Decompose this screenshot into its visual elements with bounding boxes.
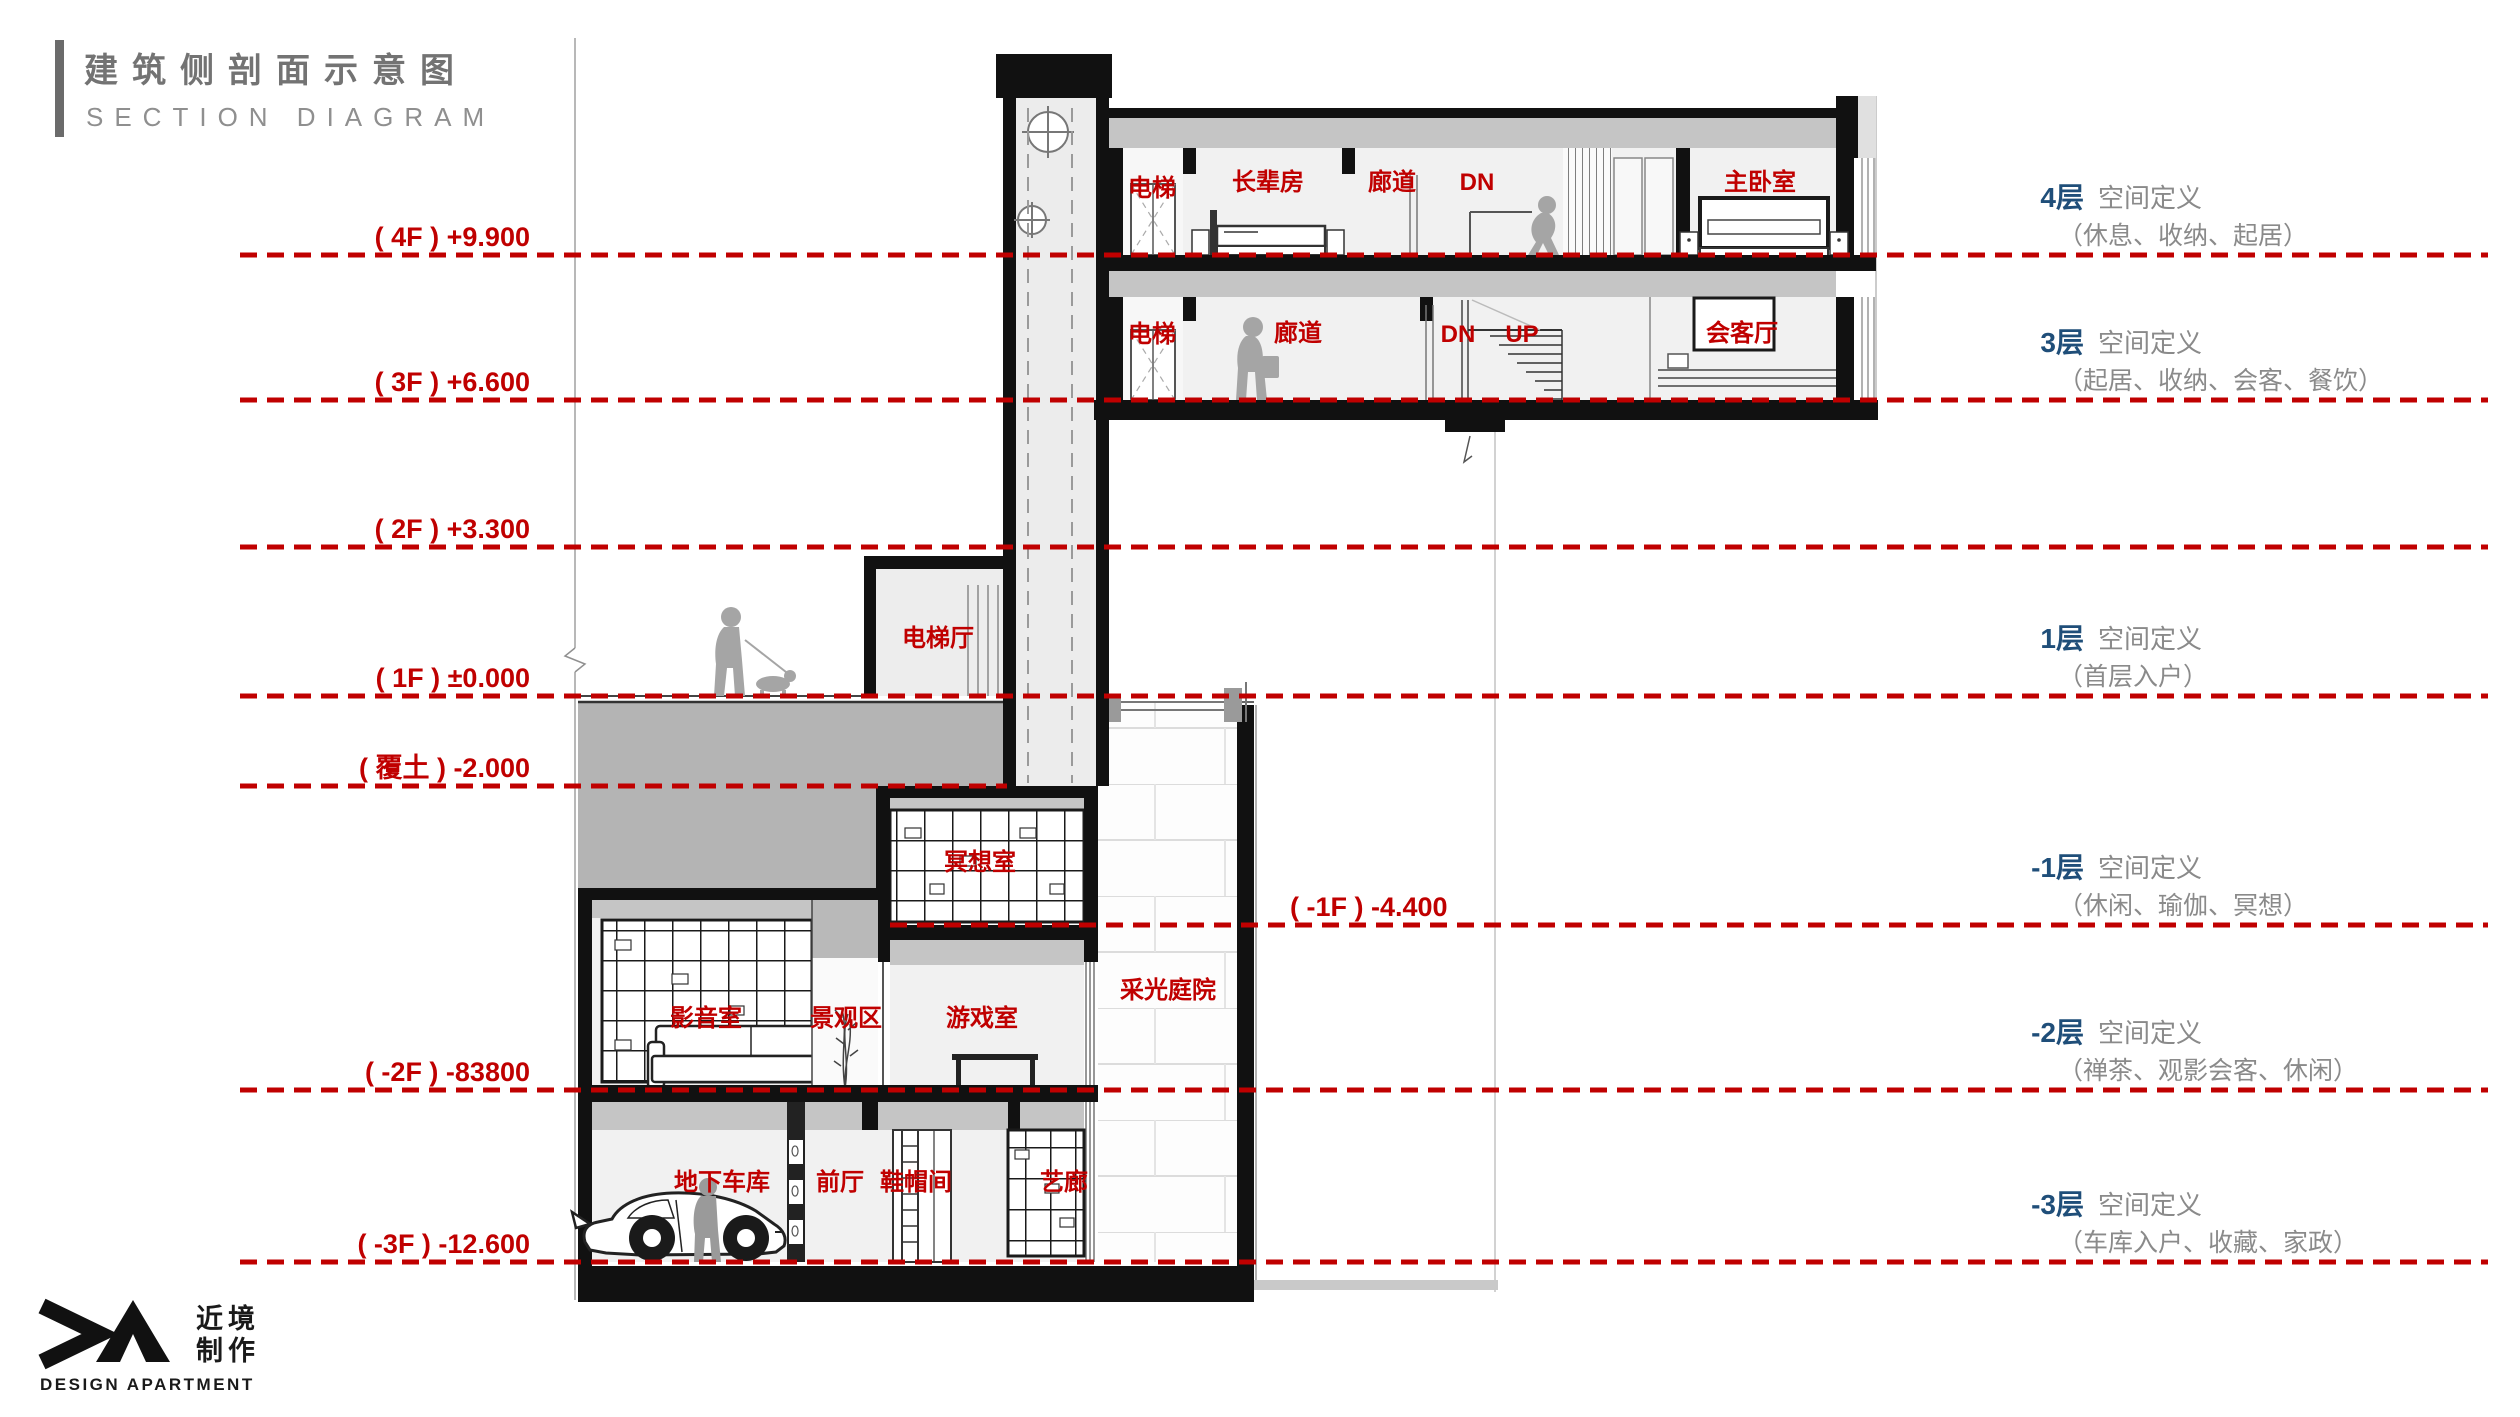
foundation-slab xyxy=(578,1266,1498,1302)
level-label-2f: ( 2F ) +3.300 xyxy=(375,514,530,544)
floor-def-b2-title: 空间定义 xyxy=(2098,1018,2202,1048)
person-figure-with-dog xyxy=(714,607,796,698)
room-label-f4-corridor: 廊道 xyxy=(1368,168,1416,196)
room-label-f3-elevator: 电梯 xyxy=(1128,320,1176,348)
floor-def-3f-num: 3层 xyxy=(2040,327,2084,358)
floor-def-1f-detail: （首层入户） xyxy=(2058,663,2208,691)
floor-def-4f-title: 空间定义 xyxy=(2098,183,2202,213)
f4-panel xyxy=(1614,158,1642,255)
level-label-b3: ( -3F ) -12.600 xyxy=(357,1229,530,1259)
floor-def-1f: 1层 空间定义 （首层入户） xyxy=(2040,623,2208,691)
room-label-b3-garage: 地下车库 xyxy=(674,1168,770,1196)
f4-wardrobe xyxy=(1563,148,1612,255)
room-label-f4-elder: 长辈房 xyxy=(1232,168,1304,196)
logo-zh-top: 近境 xyxy=(196,1304,260,1334)
room-label-b2-game: 游戏室 xyxy=(946,1004,1018,1032)
b3-display-pillar xyxy=(787,1102,805,1262)
f4-right-glazing xyxy=(1862,158,1874,255)
room-label-b3-foyer: 前厅 xyxy=(816,1168,864,1196)
logo-chevron-icon xyxy=(42,1306,100,1362)
room-label-f3-up: UP xyxy=(1505,321,1538,348)
section-diagram-page: ( 4F ) +9.900 ( 3F ) +6.600 ( 2F ) +3.30… xyxy=(0,0,2520,1417)
floor-def-b3: -3层 空间定义 （车库入户、收藏、家政） xyxy=(2031,1189,2358,1257)
floor-def-b1-detail: （休闲、瑜伽、冥想） xyxy=(2058,892,2308,920)
logo-en: DESIGN APARTMENT xyxy=(40,1375,255,1394)
level-label-1f: ( 1F ) ±0.000 xyxy=(376,663,530,693)
room-label-f4-dn: DN xyxy=(1460,169,1495,196)
f3-floor-slab xyxy=(1094,400,1878,420)
title-bar xyxy=(55,40,64,137)
floor-def-3f-detail: （起居、收纳、会客、餐饮） xyxy=(2058,367,2383,395)
floor-3f-section xyxy=(1094,271,1878,462)
room-label-f4-master: 主卧室 xyxy=(1724,168,1796,196)
floor-def-b1-title: 空间定义 xyxy=(2098,853,2202,883)
f4-master-bed xyxy=(1680,198,1848,256)
room-label-f1-hall: 电梯厅 xyxy=(902,624,974,652)
f3-elevator-door xyxy=(1123,297,1183,400)
room-label-b2-landscape: 景观区 xyxy=(810,1005,882,1032)
room-label-b3-gallery: 艺廊 xyxy=(1040,1168,1088,1196)
floor-def-4f: 4层 空间定义 （休息、收纳、起居） xyxy=(2040,182,2308,250)
floor-definitions: 4层 空间定义 （休息、收纳、起居） 3层 空间定义 （起居、收纳、会客、餐饮）… xyxy=(2031,182,2383,1257)
floor-def-3f: 3层 空间定义 （起居、收纳、会客、餐饮） xyxy=(2040,327,2383,395)
level-label-b1: ( -1F ) -4.400 xyxy=(1290,892,1448,922)
room-label-b1-meditation: 冥想室 xyxy=(944,848,1016,876)
room-label-court: 采光庭院 xyxy=(1120,976,1216,1004)
room-label-b3-shoe: 鞋帽间 xyxy=(880,1169,952,1196)
room-label-f4-elevator: 电梯 xyxy=(1128,174,1176,202)
floor-def-4f-num: 4层 xyxy=(2040,182,2084,213)
level-label-4f: ( 4F ) +9.900 xyxy=(375,222,530,252)
tower-cap xyxy=(996,54,1112,98)
b2-landscape-zone xyxy=(812,900,883,1090)
floor-def-b3-detail: （车库入户、收藏、家政） xyxy=(2058,1229,2358,1257)
section-pointer xyxy=(1464,436,1472,462)
floor-def-1f-num: 1层 xyxy=(2040,623,2084,654)
floor-def-b1: -1层 空间定义 （休闲、瑜伽、冥想） xyxy=(2031,852,2308,920)
floor-def-b2-num: -2层 xyxy=(2031,1017,2084,1048)
b3-shoe-cabinet xyxy=(893,1130,951,1262)
page-title: 建筑侧剖面示意图 xyxy=(84,52,468,90)
page-subtitle: SECTION DIAGRAM xyxy=(86,102,495,132)
room-label-f3-corridor: 廊道 xyxy=(1274,319,1322,347)
logo-zh-bottom: 制作 xyxy=(196,1336,260,1366)
floor-def-3f-title: 空间定义 xyxy=(2098,328,2202,358)
room-label-b2-cinema: 影音室 xyxy=(670,1004,742,1032)
logo: 近境 制作 DESIGN APARTMENT xyxy=(40,1300,260,1394)
section-diagram-canvas: ( 4F ) +9.900 ( 3F ) +6.600 ( 2F ) +3.30… xyxy=(0,0,2520,1417)
f4-panel xyxy=(1645,158,1673,255)
f3-right-glazing xyxy=(1862,297,1874,400)
room-label-f3-reception: 会客厅 xyxy=(1706,319,1778,347)
courtyard-right-wall xyxy=(1237,705,1254,1285)
floor-def-1f-title: 空间定义 xyxy=(2098,624,2202,654)
floor-def-b2-detail: （禅茶、观影会客、休闲） xyxy=(2058,1057,2358,1085)
grid-break-mark xyxy=(565,648,585,672)
title-block: 建筑侧剖面示意图 SECTION DIAGRAM xyxy=(55,40,495,137)
level-label-b2: ( -2F ) -83800 xyxy=(365,1057,530,1087)
level-label-3f: ( 3F ) +6.600 xyxy=(375,367,530,397)
floor-def-b1-num: -1层 xyxy=(2031,852,2084,883)
floor-def-b3-num: -3层 xyxy=(2031,1189,2084,1220)
room-label-f3-dn: DN xyxy=(1441,321,1476,348)
floor-def-4f-detail: （休息、收纳、起居） xyxy=(2058,222,2308,250)
floor-def-b3-title: 空间定义 xyxy=(2098,1190,2202,1220)
level-label-soil: ( 覆土 ) -2.000 xyxy=(359,753,530,783)
floor-def-b2: -2层 空间定义 （禅茶、观影会客、休闲） xyxy=(2031,1017,2358,1085)
